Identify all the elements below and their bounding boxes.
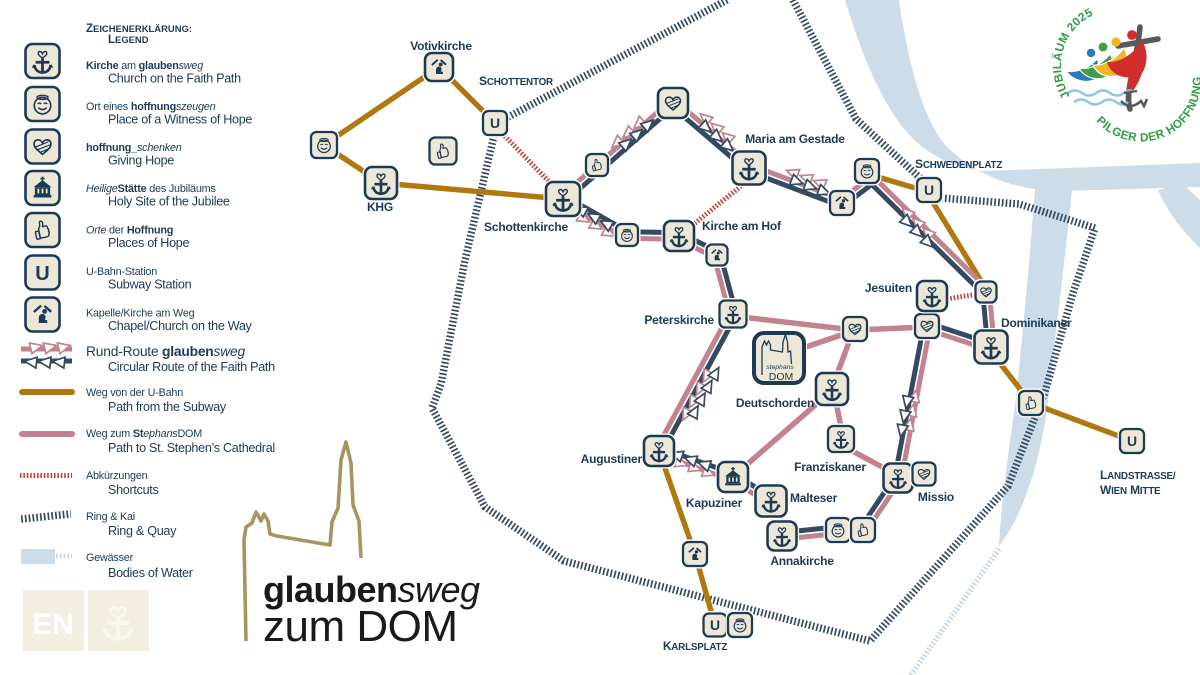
svg-text:Bodies of Water: Bodies of Water <box>108 566 193 580</box>
svg-text:Church on the Faith Path: Church on the Faith Path <box>108 72 241 86</box>
svg-text:DOM: DOM <box>769 371 794 383</box>
svg-text:Schottenkirche: Schottenkirche <box>484 220 568 234</box>
svg-text:U: U <box>710 617 720 633</box>
svg-text:SCHOTTENTOR: SCHOTTENTOR <box>479 74 553 88</box>
svg-text:Votivkirche: Votivkirche <box>410 39 472 53</box>
svg-text:Annakirche: Annakirche <box>770 554 834 568</box>
svg-text:Jesuiten: Jesuiten <box>865 281 912 295</box>
svg-text:LEGEND: LEGEND <box>108 34 149 46</box>
svg-text:KARLSPLATZ: KARLSPLATZ <box>663 639 728 653</box>
svg-text:Giving Hope: Giving Hope <box>108 154 174 168</box>
svg-text:Shortcuts: Shortcuts <box>108 483 159 497</box>
svg-text:Ort eines hoffnungszeugen: Ort eines hoffnungszeugen <box>86 101 216 113</box>
svg-text:U: U <box>1127 433 1137 449</box>
svg-text:U: U <box>924 182 934 198</box>
svg-text:zum DOM: zum DOM <box>263 602 458 651</box>
svg-text:Kapuziner: Kapuziner <box>686 496 743 510</box>
svg-text:U-Bahn-Station: U-Bahn-Station <box>86 266 157 278</box>
svg-text:Weg von der U-Bahn: Weg von der U-Bahn <box>86 387 183 399</box>
svg-text:Orte der Hoffnung: Orte der Hoffnung <box>86 225 173 237</box>
svg-text:U: U <box>35 263 49 285</box>
svg-text:Chapel/Church on the Way: Chapel/Church on the Way <box>108 319 253 333</box>
svg-text:KHG: KHG <box>367 200 393 214</box>
svg-text:Subway Station: Subway Station <box>108 278 192 292</box>
svg-text:Missio: Missio <box>918 490 954 504</box>
svg-text:Weg zum StephansDOM: Weg zum StephansDOM <box>86 428 202 440</box>
svg-text:Dominikaner: Dominikaner <box>1001 316 1072 330</box>
svg-text:Gewässer: Gewässer <box>86 552 134 564</box>
svg-text:HeiligeStätte des Jubiläums: HeiligeStätte des Jubiläums <box>86 183 216 195</box>
svg-text:Kirche am Hof: Kirche am Hof <box>702 219 782 233</box>
svg-text:Franziskaner: Franziskaner <box>794 460 866 474</box>
svg-text:PILGER DER HOFFNUNG: PILGER DER HOFFNUNG <box>1094 76 1200 144</box>
svg-text:Holy Site of the Jubilee: Holy Site of the Jubilee <box>108 195 230 209</box>
svg-text:Deutschorden: Deutschorden <box>736 396 814 410</box>
svg-text:stephans: stephans <box>766 364 794 371</box>
svg-text:Peterskirche: Peterskirche <box>644 313 714 327</box>
svg-text:U: U <box>490 115 500 131</box>
svg-text:Augustiner: Augustiner <box>581 452 643 466</box>
svg-text:Path to St. Stephen’s Cathedra: Path to St. Stephen’s Cathedral <box>108 441 275 455</box>
svg-text:Ring & Kai: Ring & Kai <box>86 511 135 523</box>
svg-text:Abkürzungen: Abkürzungen <box>86 470 148 482</box>
svg-text:Ring & Quay: Ring & Quay <box>108 524 177 538</box>
svg-text:LANDSTRASSE/: LANDSTRASSE/ <box>1100 468 1176 482</box>
svg-text:Places of Hope: Places of Hope <box>108 236 190 250</box>
svg-text:Kapelle/Kirche am Weg: Kapelle/Kirche am Weg <box>86 308 195 320</box>
svg-text:SCHWEDENPLATZ: SCHWEDENPLATZ <box>915 157 1002 171</box>
svg-text:Place of a Witness of Hope: Place of a Witness of Hope <box>108 113 252 127</box>
svg-text:Kirche am glaubensweg: Kirche am glaubensweg <box>86 60 203 72</box>
svg-text:Circular Route of the Faith Pa: Circular Route of the Faith Path <box>108 360 275 374</box>
svg-text:Path from the Subway: Path from the Subway <box>108 400 227 414</box>
svg-text:hoffnung_schenken: hoffnung_schenken <box>86 142 182 154</box>
svg-text:WIEN MITTE: WIEN MITTE <box>1100 483 1161 497</box>
svg-text:Malteser: Malteser <box>790 491 838 505</box>
svg-text:Rund-Route glaubensweg: Rund-Route glaubensweg <box>86 344 245 359</box>
svg-text:Maria am Gestade: Maria am Gestade <box>745 132 845 146</box>
svg-text:EN: EN <box>32 608 74 641</box>
